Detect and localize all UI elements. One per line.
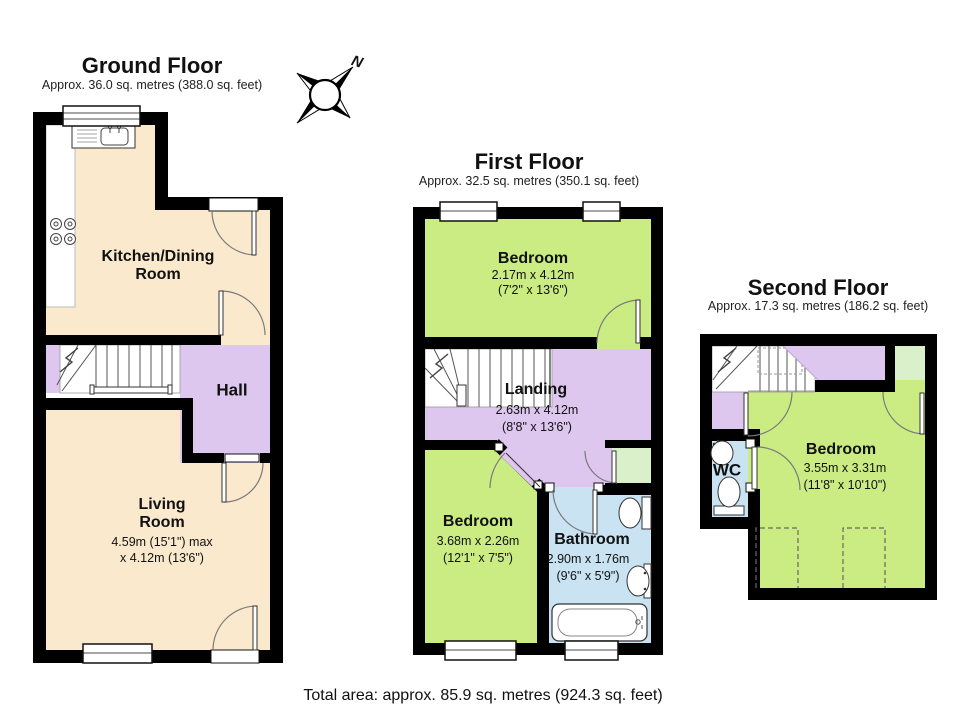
stair-handrail [93, 387, 170, 393]
ff-bedroom2-label: Bedroom [443, 514, 513, 530]
ff-bedroom2-dim-imperial: (12'1" x 7'5") [443, 552, 513, 565]
wall-bedroom2-top [425, 440, 497, 450]
hall-floor [180, 345, 270, 463]
wall-landing-bedroom [815, 380, 895, 392]
kitchen-counter [46, 125, 75, 307]
stair-newel [457, 385, 466, 406]
bathroom-label: Bathroom [554, 532, 630, 548]
wall-cupboard-top [605, 440, 651, 448]
wc-label: WC [713, 462, 741, 479]
second-floor-title: Second Floor [748, 277, 889, 299]
ff-bedroom1-dim-metric: 2.17m x 4.12m [492, 269, 575, 282]
wall-dining-hall [46, 335, 221, 345]
ground-floor-stairs [46, 345, 180, 394]
first-floor-stairs [425, 349, 552, 407]
sf-landing-left [712, 392, 748, 429]
bathroom-dim-metric: 2.90m x 1.76m [547, 553, 630, 566]
sf-bedroom-dim-imperial: (11'8" x 10'10") [804, 479, 887, 492]
total-area-label: Total area: approx. 85.9 sq. metres (924… [303, 688, 662, 704]
toilet-icon [619, 497, 651, 529]
ground-floor-title: Ground Floor [82, 55, 223, 77]
wall-landing-cupboard [885, 346, 895, 380]
bedroom2-window [445, 641, 516, 660]
first-floor-area: Approx. 32.5 sq. metres (350.1 sq. feet) [419, 175, 639, 188]
door-leaf [253, 606, 257, 650]
door-leaf [744, 393, 748, 435]
wall-bedroom1 [425, 337, 597, 349]
compass-icon [297, 67, 353, 123]
door-leaf [252, 211, 256, 255]
landing-label: Landing [505, 382, 567, 398]
bathroom-window [565, 641, 618, 660]
wall-stairs-living [46, 398, 193, 410]
bathroom-dim-imperial: (9'6" x 5'9") [557, 570, 620, 583]
kitchen-label-line2: Room [135, 267, 180, 283]
door-leaf [219, 291, 223, 335]
wall-cupboard-bottom [605, 483, 651, 495]
bedroom1-window-left [440, 202, 497, 221]
bathtub-icon [552, 604, 647, 641]
second-floor-area: Approx. 17.3 sq. metres (186.2 sq. feet) [708, 300, 928, 313]
kitchen-sink [72, 125, 135, 148]
landing-dim-metric: 2.63m x 4.12m [496, 404, 579, 417]
cupboard-floor [612, 448, 651, 483]
hall-label: Hall [216, 382, 247, 399]
door-leaf [593, 490, 597, 534]
living-room-dim-metric: 4.59m (15'1") max [111, 536, 212, 549]
wall-wc-right-lower [748, 489, 760, 517]
first-floor-title: First Floor [475, 151, 584, 173]
sf-bedroom-dim-metric: 3.55m x 3.31m [804, 462, 887, 475]
door-leaf [920, 393, 924, 434]
door-leaf [752, 447, 757, 489]
living-room-label-line2: Room [139, 515, 184, 531]
bedroom1-window-right [583, 202, 620, 221]
door-leaf [612, 451, 616, 483]
floorplan-page: N Ground Floor Approx. 36.0 sq. metres (… [0, 0, 980, 712]
ff-bedroom2-dim-metric: 3.68m x 2.26m [437, 535, 520, 548]
wall-hall-living-h [182, 453, 224, 463]
landing-dim-imperial: (8'8" x 13'6") [502, 421, 572, 434]
living-room-dim-imperial: x 4.12m (13'6") [120, 552, 204, 565]
ff-bedroom1-dim-imperial: (7'2" x 13'6") [498, 284, 568, 297]
door-leaf [222, 463, 226, 502]
sf-bedroom-label: Bedroom [806, 442, 876, 458]
living-room-window [83, 644, 152, 663]
door-leaf [636, 300, 640, 343]
ff-bedroom1-label: Bedroom [498, 251, 568, 267]
sf-cupboard-floor [895, 346, 925, 380]
kitchen-window [63, 106, 140, 126]
ground-floor-area: Approx. 36.0 sq. metres (388.0 sq. feet) [42, 79, 262, 92]
floorplan-drawing [0, 0, 980, 712]
living-room-label-line1: Living [138, 497, 185, 513]
kitchen-label-line1: Kitchen/Dining [102, 249, 215, 265]
